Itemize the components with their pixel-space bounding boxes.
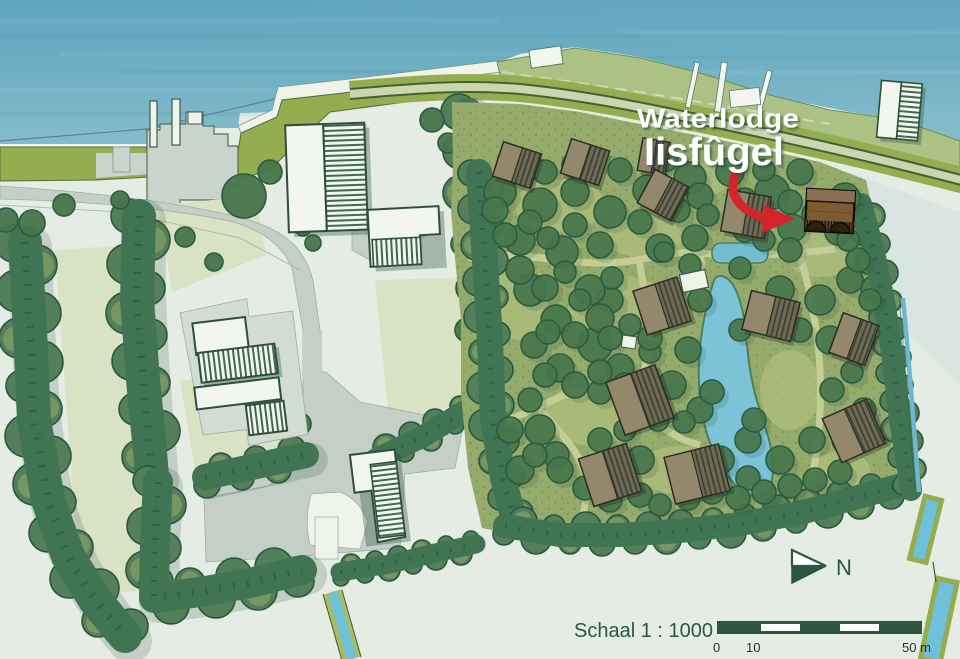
svg-text:50 m: 50 m [902,640,931,655]
svg-text:0: 0 [713,640,720,655]
svg-text:10: 10 [746,640,760,655]
svg-text:Iisfûgel: Iisfûgel [644,131,784,174]
svg-text:Schaal 1 : 1000: Schaal 1 : 1000 [574,620,713,642]
svg-text:Waterlodge: Waterlodge [637,104,799,134]
svg-text:N: N [836,555,852,580]
